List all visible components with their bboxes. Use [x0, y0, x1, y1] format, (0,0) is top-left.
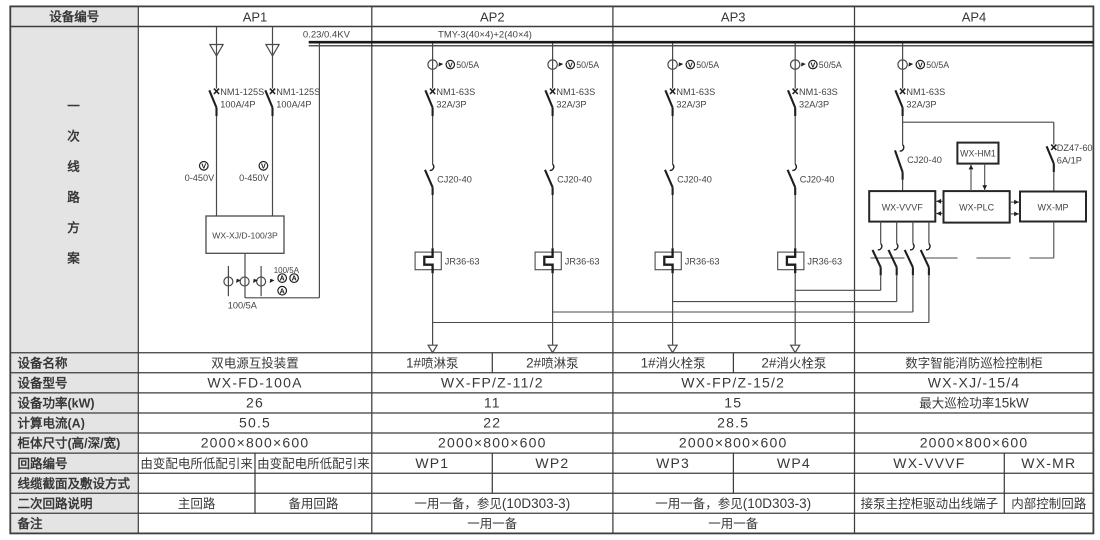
svg-text:主回路: 主回路: [178, 496, 216, 511]
svg-text:CJ20-40: CJ20-40: [907, 155, 942, 165]
svg-text:WP4: WP4: [777, 455, 811, 471]
svg-text:WP2: WP2: [535, 455, 569, 471]
svg-text:JR36-63: JR36-63: [807, 256, 842, 266]
svg-text:AP2: AP2: [480, 9, 505, 24]
svg-text:WX-HM1: WX-HM1: [960, 148, 996, 158]
svg-text:一用一备，参见(10D303-3): 一用一备，参见(10D303-3): [655, 496, 811, 511]
svg-text:备注: 备注: [17, 516, 44, 531]
svg-text:DZ47-60: DZ47-60: [1057, 143, 1093, 153]
svg-text:JR36-63: JR36-63: [565, 256, 600, 266]
svg-text:AP3: AP3: [721, 9, 746, 24]
svg-text:26: 26: [246, 395, 264, 411]
svg-text:50/5A: 50/5A: [926, 60, 949, 70]
svg-text:接泵主控柜驱动出线端子: 接泵主控柜驱动出线端子: [861, 496, 999, 511]
svg-text:0.23/0.4KV: 0.23/0.4KV: [303, 29, 351, 40]
svg-text:线缆截面及敷设方式: 线缆截面及敷设方式: [18, 476, 131, 491]
svg-text:二次回路说明: 二次回路说明: [18, 496, 93, 511]
svg-text:WP3: WP3: [656, 455, 690, 471]
svg-text:双电源互投装置: 双电源互投装置: [211, 355, 299, 370]
svg-text:WX-VVVF: WX-VVVF: [893, 455, 965, 471]
svg-text:100/5A: 100/5A: [274, 266, 300, 275]
svg-text:1#喷淋泵: 1#喷淋泵: [406, 355, 459, 370]
svg-text:一用一备: 一用一备: [708, 517, 759, 531]
svg-text:一: 一: [67, 99, 80, 113]
svg-text:32A/3P: 32A/3P: [906, 100, 936, 110]
svg-text:A: A: [292, 276, 297, 283]
svg-text:WX-FP/Z-15/2: WX-FP/Z-15/2: [681, 374, 785, 390]
svg-text:28.5: 28.5: [717, 415, 749, 431]
svg-text:1#消火栓泵: 1#消火栓泵: [641, 355, 706, 370]
svg-text:AP4: AP4: [962, 9, 987, 24]
svg-text:JR36-63: JR36-63: [445, 256, 480, 266]
svg-text:NM1-125S: NM1-125S: [220, 87, 264, 97]
svg-text:32A/3P: 32A/3P: [556, 100, 586, 110]
svg-text:WX-MP: WX-MP: [1038, 202, 1069, 212]
svg-text:100A/4P: 100A/4P: [276, 100, 311, 110]
svg-text:V: V: [261, 162, 266, 171]
svg-text:数字智能消防巡检控制柜: 数字智能消防巡检控制柜: [905, 355, 1043, 370]
svg-text:V: V: [568, 60, 573, 69]
svg-text:50/5A: 50/5A: [576, 60, 599, 70]
svg-text:V: V: [918, 60, 923, 69]
svg-text:CJ20-40: CJ20-40: [557, 175, 592, 185]
svg-text:设备编号: 设备编号: [49, 9, 99, 24]
svg-text:WX-FP/Z-11/2: WX-FP/Z-11/2: [441, 374, 544, 390]
svg-text:内部控制回路: 内部控制回路: [1011, 496, 1087, 511]
svg-text:CJ20-40: CJ20-40: [677, 175, 712, 185]
svg-text:50.5: 50.5: [239, 415, 271, 431]
svg-text:2000×800×600: 2000×800×600: [920, 435, 1029, 451]
svg-text:NM1-63S: NM1-63S: [906, 87, 945, 97]
svg-text:2#喷淋泵: 2#喷淋泵: [526, 355, 579, 370]
svg-text:2000×800×600: 2000×800×600: [201, 435, 310, 451]
svg-text:WX-XJ/D-100/3P: WX-XJ/D-100/3P: [212, 231, 278, 241]
svg-text:CJ20-40: CJ20-40: [437, 175, 472, 185]
svg-text:50/5A: 50/5A: [696, 60, 719, 70]
svg-text:100/5A: 100/5A: [228, 301, 258, 311]
svg-text:次: 次: [67, 129, 80, 144]
svg-text:2#消火栓泵: 2#消火栓泵: [761, 355, 826, 370]
svg-text:方: 方: [67, 220, 80, 235]
svg-text:32A/3P: 32A/3P: [436, 100, 466, 110]
svg-text:32A/3P: 32A/3P: [676, 100, 706, 110]
svg-text:NM1-63S: NM1-63S: [436, 87, 475, 97]
svg-text:50/5A: 50/5A: [819, 60, 842, 70]
svg-text:NM1-63S: NM1-63S: [676, 87, 715, 97]
svg-text:NM1-63S: NM1-63S: [556, 87, 595, 97]
svg-text:设备功率(kW): 设备功率(kW): [18, 396, 95, 411]
svg-text:TMY-3(40×4)+2(40×4): TMY-3(40×4)+2(40×4): [438, 29, 532, 40]
svg-text:柜体尺寸(高/深/宽): 柜体尺寸(高/深/宽): [17, 436, 121, 451]
svg-text:0-450V: 0-450V: [185, 173, 215, 183]
svg-text:NM1-125S: NM1-125S: [276, 87, 320, 97]
svg-text:15: 15: [724, 395, 742, 411]
svg-text:由变配电所低配引来: 由变配电所低配引来: [140, 456, 253, 471]
svg-text:11: 11: [484, 395, 501, 411]
svg-text:50/5A: 50/5A: [456, 60, 479, 70]
svg-text:案: 案: [66, 250, 80, 265]
svg-text:WX-VVVF: WX-VVVF: [882, 202, 924, 212]
svg-text:WX-XJ/-15/4: WX-XJ/-15/4: [928, 374, 1021, 390]
svg-text:设备型号: 设备型号: [18, 375, 68, 390]
svg-text:最大巡检功率15kW: 最大巡检功率15kW: [919, 396, 1029, 411]
svg-text:32A/3P: 32A/3P: [799, 100, 829, 110]
svg-text:由变配电所低配引来: 由变配电所低配引来: [257, 456, 370, 471]
svg-text:V: V: [201, 162, 206, 171]
svg-text:备用回路: 备用回路: [288, 496, 339, 511]
svg-text:线: 线: [67, 159, 80, 174]
svg-text:NM1-63S: NM1-63S: [799, 87, 838, 97]
svg-text:设备名称: 设备名称: [18, 355, 69, 370]
svg-text:0-450V: 0-450V: [239, 173, 269, 183]
svg-text:A: A: [280, 288, 285, 295]
svg-text:一用一备，参见(10D303-3): 一用一备，参见(10D303-3): [414, 496, 570, 511]
svg-text:2000×800×600: 2000×800×600: [438, 435, 547, 451]
svg-text:回路编号: 回路编号: [18, 456, 68, 471]
svg-text:WX-MR: WX-MR: [1021, 455, 1076, 471]
svg-text:一用一备: 一用一备: [467, 517, 518, 531]
svg-text:2000×800×600: 2000×800×600: [679, 435, 788, 451]
svg-text:22: 22: [483, 415, 501, 431]
svg-text:6A/1P: 6A/1P: [1057, 156, 1082, 166]
svg-text:V: V: [688, 60, 693, 69]
svg-text:WX-PLC: WX-PLC: [959, 203, 995, 213]
svg-text:A: A: [280, 276, 285, 283]
svg-text:V: V: [811, 60, 816, 69]
svg-text:CJ20-40: CJ20-40: [800, 175, 835, 185]
svg-text:JR36-63: JR36-63: [685, 256, 720, 266]
svg-text:100A/4P: 100A/4P: [220, 100, 255, 110]
svg-text:路: 路: [67, 190, 80, 205]
svg-text:V: V: [448, 60, 453, 69]
svg-text:AP1: AP1: [243, 9, 268, 24]
svg-text:计算电流(A): 计算电流(A): [18, 416, 85, 431]
svg-text:WX-FD-100A: WX-FD-100A: [207, 374, 302, 390]
svg-text:WP1: WP1: [415, 455, 449, 471]
